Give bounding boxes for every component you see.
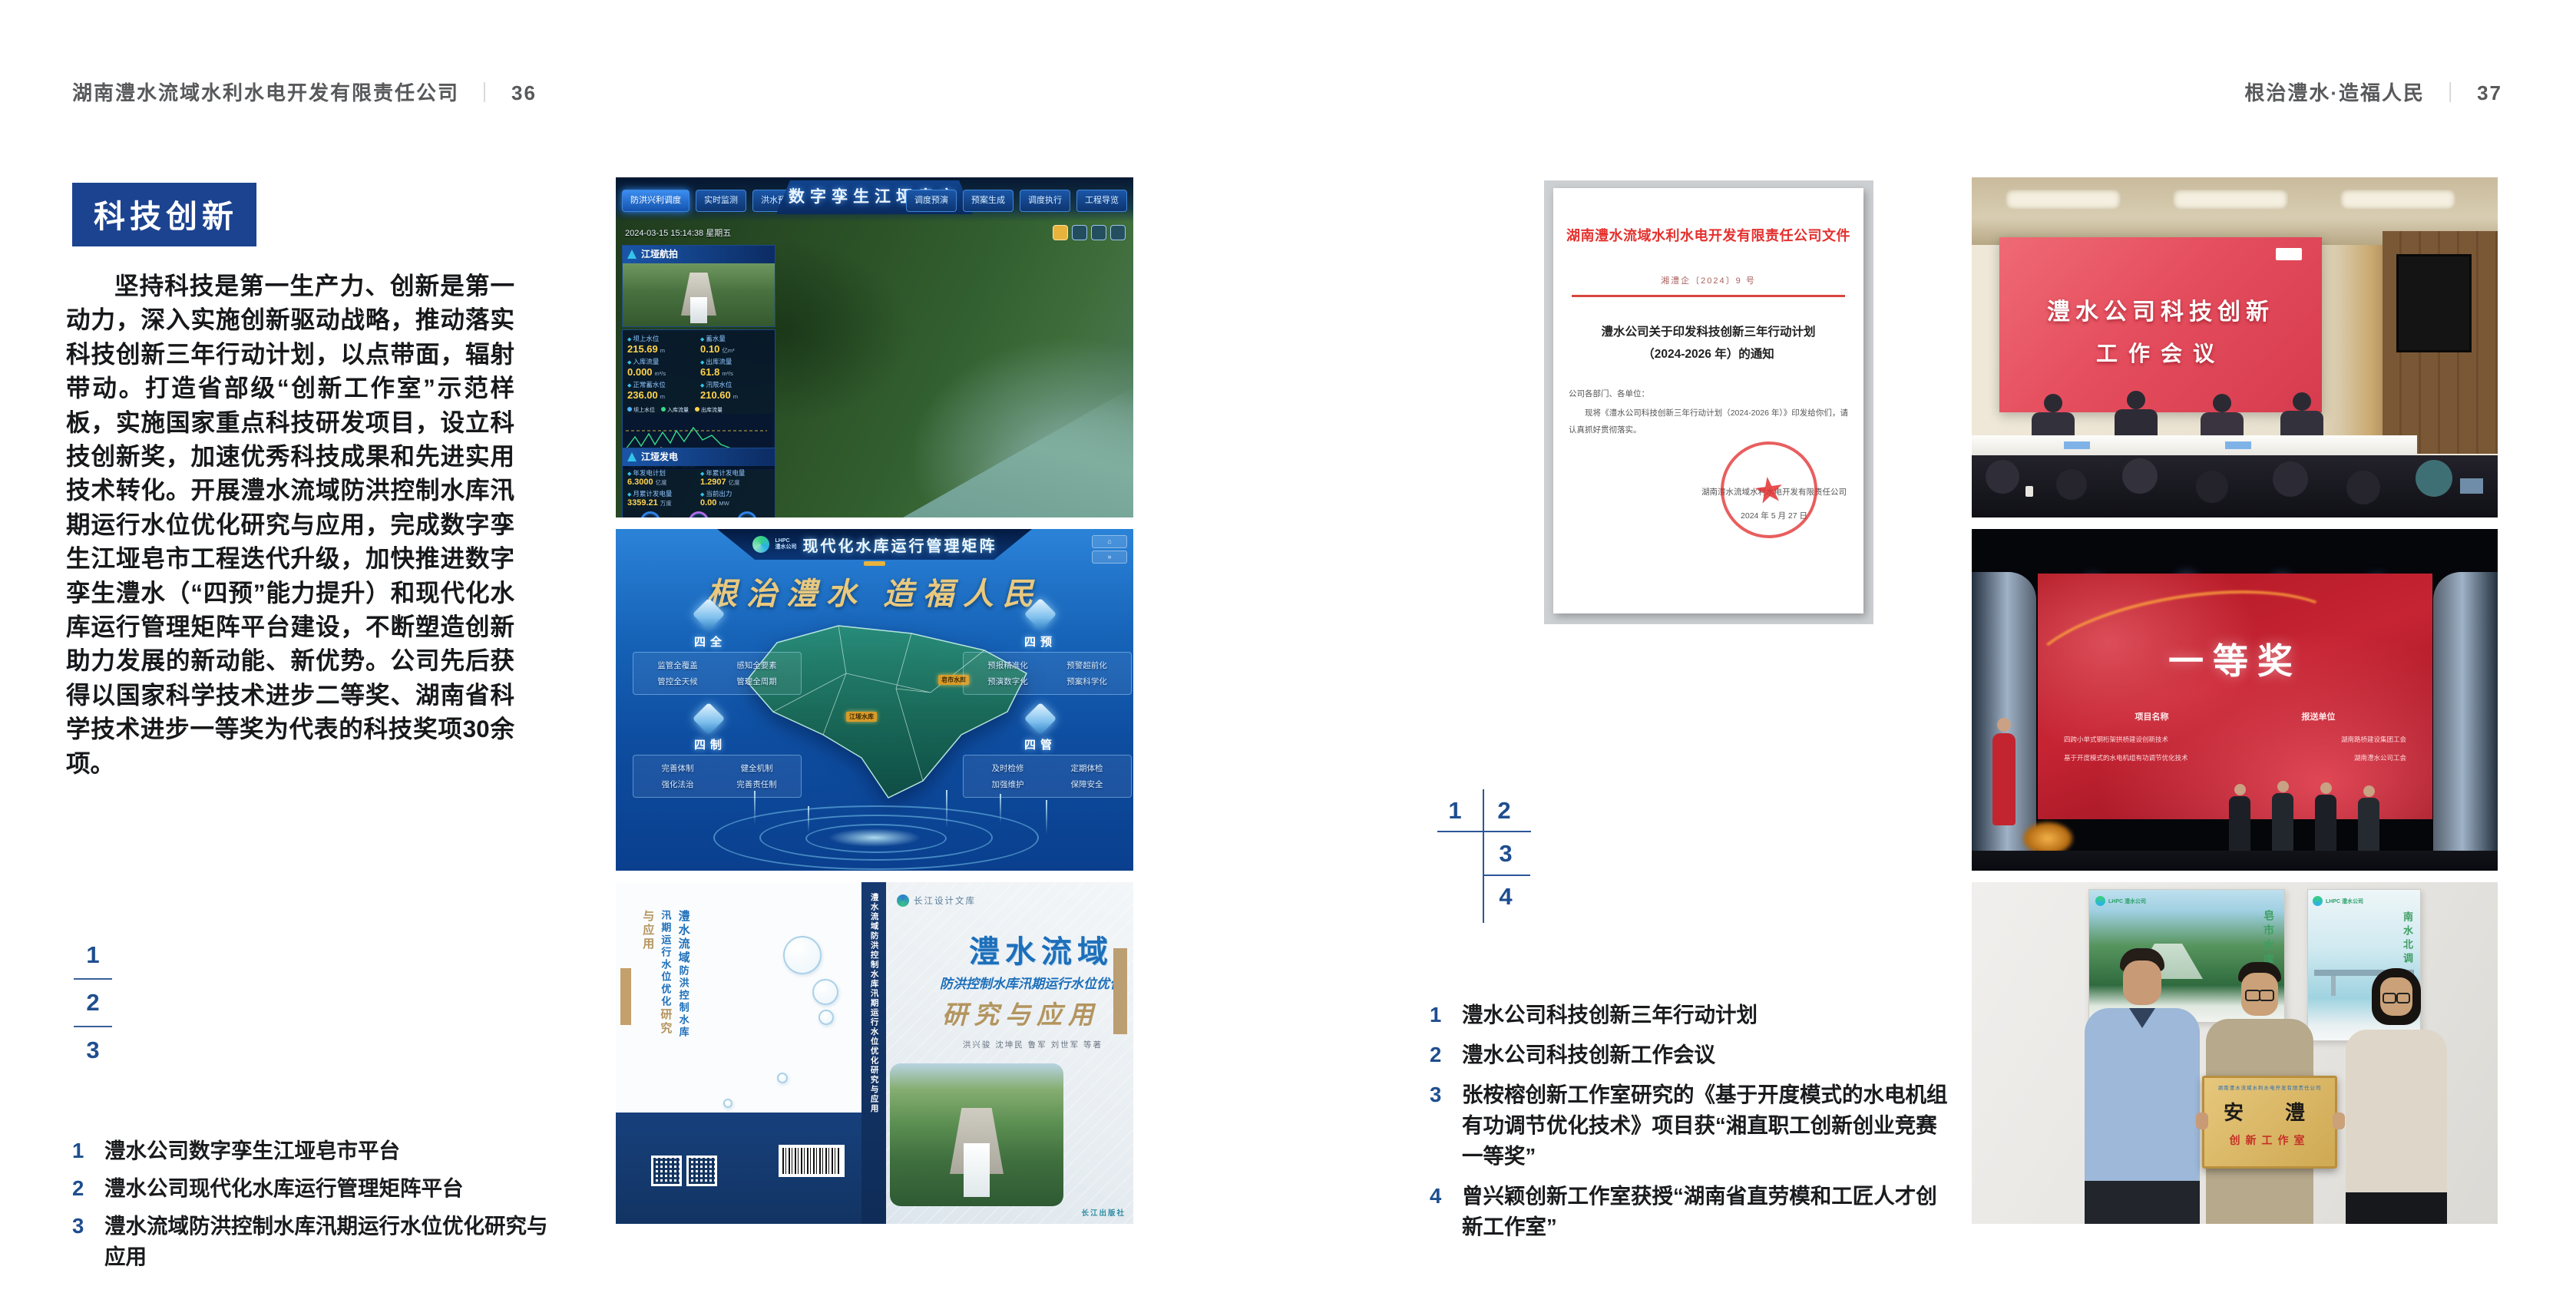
barcode [779, 1145, 845, 1177]
caption-text: 澧水公司数字孪生江垭皂市平台 [104, 1136, 400, 1166]
bridge-pier [2331, 976, 2336, 996]
reservoir-water [903, 387, 1133, 517]
caption-text: 张桉榕创新工作室研究的《基于开度模式的水电机组有功调节优化技术》项目获“湘直职工… [1462, 1080, 1949, 1172]
matrix-slogan: 根治澧水 造福人民 [616, 569, 1133, 613]
caption-text: 澧水流域防洪控制水库汛期运行水位优化研究与应用 [104, 1211, 564, 1272]
plaque-main-title: 安 澧 [2204, 1097, 2335, 1126]
panel-icon-zhi [693, 703, 725, 735]
poster-brand: LHPC 澧水公司 [2095, 896, 2146, 906]
led-screen: 一等奖 项目名称 报送单位 四跨小单式钢桁架拱桥建设创新技术 湖南路桥建设集团工… [2038, 574, 2432, 819]
glasses-icon [2396, 993, 2410, 1003]
index-grid-hline [1484, 875, 1530, 876]
gauge-unit3: 3号机组 [737, 511, 757, 517]
twin-right-tabs: 调度预演 预案生成 调度执行 工程导览 [906, 190, 1127, 212]
metric: 坝上水位215.69m [627, 334, 697, 355]
light-pillar [1000, 794, 1001, 823]
bubble [783, 936, 822, 974]
caption-number: 3 [72, 1211, 104, 1272]
figure-index-3: 3 [74, 1037, 112, 1064]
ceiling-light [2006, 190, 2121, 210]
bubble [777, 1073, 788, 1083]
company-logo-icon [2313, 896, 2323, 906]
plaque-company-line: 湖南澧水流域水利水电开发有限责任公司 [2204, 1083, 2335, 1091]
book-title-tail: 研究与应用 [942, 994, 1100, 1031]
front-tan-bar [1113, 948, 1127, 1034]
caption-text: 曾兴颖创新工作室获授“湖南省直劳模和工匠人才创新工作室” [1462, 1181, 1949, 1242]
back-navy-band [616, 1113, 861, 1224]
twin-timestamp: 2024-03-15 15:14:38 星期五 [625, 226, 731, 239]
wall-tv [2396, 254, 2472, 352]
workshop-plaque: 湖南澧水流域水利水电开发有限责任公司 安 澧 创新工作室 [2202, 1076, 2337, 1169]
video-panel-title: 江垭航拍 [623, 246, 775, 263]
book-front-cover: 长江设计文库 澧水流域 防洪控制水库汛期运行水位优化 研究与应用 洪兴骏 沈坤民… [886, 882, 1133, 1224]
book-title-sub: 防洪控制水库汛期运行水位优化 [940, 973, 1123, 992]
table-folder [2225, 441, 2251, 449]
bubble [818, 1010, 834, 1025]
tab-flood-dispatch: 防洪兴利调度 [622, 190, 689, 212]
figure-index-2: 2 [74, 989, 112, 1017]
magazine-spread: 湖南澧水流域水利水电开发有限责任公司｜36 根治澧水·造福人民｜37 科技创新 … [0, 0, 2576, 1306]
qr-code [686, 1156, 717, 1186]
award-row: 基于开度模式的水电机组有功调节优化技术 湖南澧水公司工会 [2038, 753, 2432, 762]
right-running-head: 根治澧水·造福人民｜37 [2244, 78, 2502, 106]
cover-dam-photo [890, 1063, 1063, 1206]
left-header-title: 湖南澧水流域水利水电开发有限责任公司 [72, 81, 459, 104]
light-pillar [946, 790, 947, 828]
figure-index-3: 3 [1496, 840, 1516, 868]
audience-head [2416, 460, 2452, 497]
panel-quan: 监管全覆盖感知全要素 管控全天候管理全周期 [633, 652, 802, 695]
col-unit-header: 报送单位 [2302, 710, 2336, 722]
twin-map-tools [1053, 225, 1126, 240]
panel-name: 四全 [633, 633, 788, 650]
left-captions: 1 澧水公司数字孪生江垭皂市平台 2 澧水公司现代化水库运行管理矩阵平台 3 澧… [72, 1136, 564, 1272]
press-brand: 长江设计文库 [897, 894, 976, 907]
metric: 年发电计划6.3000亿度 [627, 468, 697, 487]
awardee-figure [2270, 781, 2296, 861]
press-brand-text: 长江设计文库 [914, 894, 976, 907]
qr-code [651, 1156, 682, 1186]
metric: 入库流量0.000m³/s [627, 357, 697, 378]
awardee-figure [2227, 784, 2253, 861]
figure-index-1: 1 [74, 941, 112, 969]
metric: 出库流量61.8m³/s [700, 357, 770, 378]
screen-title-line2: 工作会议 [1999, 337, 2322, 368]
figure-matrix-platform: LHPC澧水公司 现代化水库运行管理矩阵 ⌂ » 根治澧水 造福人民 皂市水库 … [616, 529, 1133, 871]
audience-head [2056, 469, 2087, 500]
metric: 蓄水量0.10亿m³ [700, 334, 770, 355]
generation-panel-title: 江垭发电 [623, 448, 775, 466]
panel-zhi: 完善体制健全机制 强化法治完善责任制 [633, 755, 802, 798]
collar [2129, 1008, 2155, 1028]
face [2241, 973, 2278, 1016]
stage-floor [1972, 851, 2498, 871]
chart-legend: 坝上水位 入库流量 出库流量 [623, 405, 775, 414]
tab-dispatch-execute: 调度执行 [1020, 190, 1070, 212]
glasses-icon [2383, 993, 2396, 1003]
screen-logo [2276, 248, 2302, 260]
gauge-unit1: 1号机组 [640, 511, 660, 517]
audience-head [1986, 460, 2019, 494]
body-paragraph: 坚持科技是第一生产力、创新是第一动力，深入实施创新驱动战略，推动落实科技创新三年… [66, 269, 514, 780]
compass-icon [1110, 225, 1126, 240]
host-figure [1989, 718, 2019, 856]
notice-title: 澧水公司关于印发科技创新三年行动计划（2024-2026 年）的通知 [1553, 322, 1863, 365]
bubble [812, 979, 838, 1005]
publisher: 长江出版社 [1081, 1207, 1126, 1218]
matrix-header: LHPC澧水公司 现代化水库运行管理矩阵 [717, 529, 1032, 560]
caption-number: 1 [1430, 1000, 1462, 1030]
left-running-head: 湖南澧水流域水利水电开发有限责任公司｜36 [72, 78, 537, 106]
header-separator: ｜ [2440, 81, 2462, 104]
seal-star-icon: ★ [1751, 467, 1787, 512]
face [2123, 960, 2161, 1005]
glasses-icon [2259, 990, 2274, 1001]
panelist [2032, 394, 2075, 438]
dam-spillway [690, 297, 707, 323]
red-rule [1572, 295, 1845, 297]
awardee-figure [2356, 785, 2382, 861]
audience-head [2273, 461, 2308, 497]
trousers [2085, 1181, 2200, 1224]
back-vertical-title: 澧水流域防洪控制水库汛期运行水位优化研究与应用 [639, 910, 693, 1048]
caption-text: 澧水公司科技创新工作会议 [1462, 1040, 1715, 1070]
panel-name: 四预 [963, 633, 1118, 650]
person-right [2339, 968, 2454, 1224]
caption-item: 4 曾兴颖创新工作室获授“湖南省直劳模和工匠人才创新工作室” [1430, 1181, 1949, 1242]
ceiling-light [2340, 190, 2455, 210]
panelist [2280, 392, 2323, 438]
light-pillar [808, 806, 809, 832]
metric: 当前出力0.00MW [700, 489, 770, 508]
gauge-unit2: 2号机组 [689, 511, 709, 517]
header-notch [864, 561, 885, 566]
back-tan-tab [620, 968, 631, 1025]
book-back-cover: 澧水流域防洪控制水库汛期运行水位优化研究与应用 [616, 882, 861, 1224]
salutation: 公司各部门、各单位： [1569, 385, 1848, 403]
right-page-number: 37 [2477, 81, 2502, 104]
audience-area [1972, 455, 2498, 517]
laptop [2460, 478, 2483, 494]
bubble [723, 1099, 732, 1108]
metric: 正常蓄水位236.00m [627, 380, 697, 401]
panelist [2115, 391, 2158, 438]
twin-video-panel: 江垭航拍 [622, 245, 775, 327]
trousers [2346, 1192, 2447, 1224]
locate-icon [1091, 225, 1106, 240]
index-grid-vline [1483, 789, 1484, 923]
beige-top [2346, 1030, 2447, 1192]
index-rule [74, 1026, 112, 1027]
light-pillar [1046, 800, 1047, 834]
screen-title-line1: 澧水公司科技创新 [1999, 293, 2322, 326]
caption-item: 3 澧水流域防洪控制水库汛期运行水位优化研究与应用 [72, 1211, 564, 1272]
twin-generation-panel: 江垭发电 年发电计划6.3000亿度 年累计发电量1.2907亿度 月累计发电量… [622, 448, 775, 517]
company-logo-icon [752, 536, 769, 553]
header-separator: ｜ [475, 81, 496, 104]
figure-plaque-photo: LHPC 澧水公司 皂市水库 LHPC 澧水公司 南水北调 [1972, 882, 2498, 1224]
holo-glow [828, 828, 921, 847]
spine-title: 澧水流域防洪控制水库汛期运行水位优化研究与应用 [868, 893, 879, 1208]
caption-text: 澧水公司科技创新三年行动计划 [1462, 1000, 1758, 1030]
tab-realtime-monitor: 实时监测 [696, 190, 746, 212]
company-logo-text: LHPC澧水公司 [775, 538, 797, 551]
figure-index-2: 2 [1494, 797, 1514, 825]
caption-item: 1 澧水公司数字孪生江垭皂市平台 [72, 1136, 564, 1166]
tab-project-tour: 工程导览 [1076, 190, 1127, 212]
caption-number: 4 [1430, 1181, 1462, 1242]
plaque-sub-title: 创新工作室 [2204, 1132, 2335, 1148]
book-spine: 澧水流域防洪控制水库汛期运行水位优化研究与应用 [861, 882, 886, 1224]
glasses-icon [2245, 990, 2260, 1001]
hand [2333, 1113, 2345, 1129]
document-page: 湖南澧水流域水利水电开发有限责任公司文件 湘澧企〔2024〕9 号 澧水公司关于… [1553, 188, 1863, 613]
drone-photo [623, 263, 775, 326]
home-chip-icon: ⌂ [1092, 535, 1127, 548]
index-rule [74, 978, 112, 980]
figure-index-4: 4 [1496, 883, 1516, 911]
figure-official-document: 湖南澧水流域水利水电开发有限责任公司文件 湘澧企〔2024〕9 号 澧水公司关于… [1544, 180, 1873, 624]
audience-head [2122, 458, 2158, 494]
hand [2196, 1113, 2208, 1129]
tab-plan-generate: 预案生成 [963, 190, 1014, 212]
figure-award-stage: 一等奖 项目名称 报送单位 四跨小单式钢桁架拱桥建设创新技术 湖南路桥建设集团工… [1972, 529, 2498, 871]
red-seal: ★ [1715, 435, 1824, 544]
panel-yu: 预报精准化预警超前化 预演数字化预案科学化 [963, 652, 1132, 695]
left-page-number: 36 [511, 81, 537, 104]
weather-icon [1053, 225, 1068, 240]
awardee-figure [2313, 782, 2339, 861]
exit-chip-icon: » [1092, 551, 1127, 564]
panel-guan: 及时检修定期体检 加强维护保障安全 [963, 755, 1132, 798]
caption-number: 1 [72, 1136, 104, 1166]
face [2380, 977, 2412, 1016]
reservoir-tag: 江垭水库 [846, 712, 877, 722]
layers-icon [1072, 225, 1087, 240]
press-logo-icon [897, 894, 909, 907]
caption-item: 1 澧水公司科技创新三年行动计划 [1430, 1000, 1949, 1030]
tab-dispatch-rehearsal: 调度预演 [906, 190, 957, 212]
index-grid-hline [1437, 831, 1531, 832]
metric: 汛限水位210.60m [700, 380, 770, 401]
audience-head [2346, 471, 2380, 504]
figure-meeting-photo: 澧水公司科技创新 工作会议 [1972, 177, 2498, 517]
document-letterhead: 湖南澧水流域水利水电开发有限责任公司文件 [1553, 225, 1863, 245]
metric: 月累计发电量3359.21万度 [627, 489, 697, 508]
figure-index-1: 1 [1445, 797, 1465, 825]
caption-number: 2 [72, 1173, 104, 1204]
book-authors: 洪兴骏 沈坤民 鲁军 刘世军 等著 [963, 1039, 1103, 1050]
panel-name: 四管 [963, 736, 1118, 752]
audience-head [2196, 471, 2228, 503]
caption-item: 2 澧水公司科技创新工作会议 [1430, 1040, 1949, 1070]
figure-book-cover: 澧水流域防洪控制水库汛期运行水位优化研究与应用 澧水流域防洪控制水库汛期运行水位… [616, 882, 1133, 1224]
document-number: 湘澧企〔2024〕9 号 [1553, 274, 1863, 286]
notice-body: 现将《澧水公司科技创新三年行动计划（2024-2026 年）》印发给你们，请认真… [1569, 405, 1848, 439]
unit-gauges: 1号机组 2号机组 3号机组 [623, 510, 775, 517]
figure-digital-twin-platform: 防洪兴利调度 实时监测 洪水预报 防洪预警 数字孪生江垭皂市 调度预演 预案生成… [616, 177, 1133, 517]
left-figure-index: 1 2 3 [74, 941, 112, 1064]
award-row: 四跨小单式钢桁架拱桥建设创新技术 湖南路桥建设集团工会 [2038, 735, 2432, 744]
ceiling-light [2173, 190, 2288, 210]
company-logo-icon [2095, 896, 2105, 906]
stage-pillar-right [2433, 572, 2498, 871]
polo-shirt [2085, 1008, 2200, 1181]
caption-item: 2 澧水公司现代化水库运行管理矩阵平台 [72, 1173, 564, 1204]
matrix-title: 现代化水库运行管理矩阵 [803, 534, 997, 556]
panel-name: 四制 [633, 736, 788, 752]
poster-brand: LHPC 澧水公司 [2313, 896, 2363, 906]
book-title-main: 澧水流域 [969, 927, 1113, 971]
panelist [2201, 394, 2244, 438]
projection-screen: 澧水公司科技创新 工作会议 [1999, 237, 2322, 412]
right-captions: 1 澧水公司科技创新三年行动计划 2 澧水公司科技创新工作会议 3 张桉榕创新工… [1430, 1000, 1949, 1242]
table-folder [2064, 441, 2090, 449]
caption-item: 3 张桉榕创新工作室研究的《基于开度模式的水电机组有功调节优化技术》项目获“湘直… [1430, 1080, 1949, 1172]
caption-text: 澧水公司现代化水库运行管理矩阵平台 [104, 1173, 464, 1204]
metric: 年累计发电量1.2907亿度 [700, 468, 770, 487]
person-left [2081, 948, 2204, 1224]
caption-number: 3 [1430, 1080, 1462, 1172]
paper-cup [2025, 486, 2033, 497]
light-pillar [754, 791, 756, 825]
right-header-title: 根治澧水·造福人民 [2244, 81, 2425, 104]
caption-number: 2 [1430, 1040, 1462, 1070]
section-badge: 科技创新 [72, 183, 256, 246]
